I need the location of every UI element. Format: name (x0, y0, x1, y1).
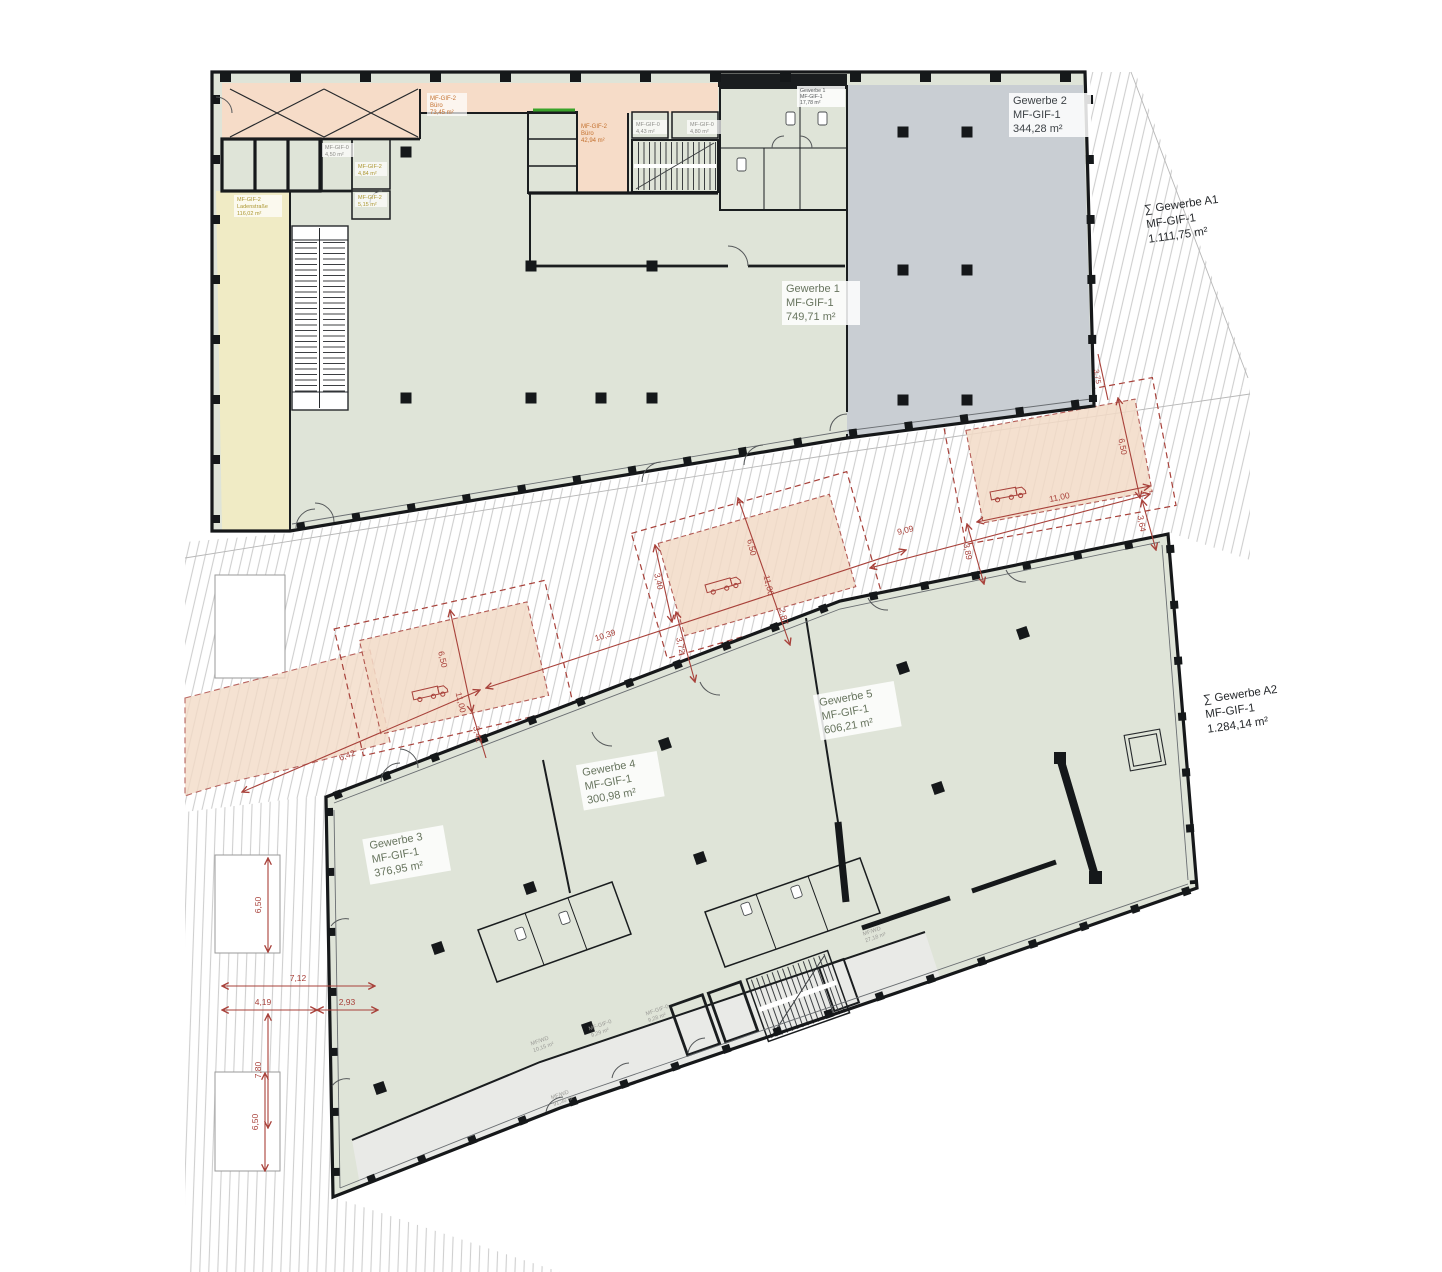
neighbor-plot (215, 1072, 280, 1171)
room-area: 5,15 m² (358, 202, 377, 208)
room-code: MF-GIF-0 (636, 122, 660, 128)
unit-name: Gewerbe 1 (786, 283, 840, 295)
toilet-icon (786, 112, 795, 125)
unit-label-gewerbe-1-wc: Gewerbe 1 MF-GIF-1 17,78 m² (797, 86, 845, 107)
unit-gewerbe-2-area (847, 85, 1092, 437)
unit-code: MF-GIF-1 (786, 297, 834, 309)
neighbor-plot (215, 855, 280, 953)
sum-name: ∑ Gewerbe A2 (1202, 684, 1278, 706)
toilet-icon (818, 112, 827, 125)
room-code: MF-GIF-2 (237, 197, 261, 203)
staircase-icon (632, 140, 718, 192)
floor-plan-canvas: 6,50 7,12 4,19 2,93 7,80 6,50 6,50 11,00… (0, 0, 1442, 1272)
dim-label: 7,80 (253, 1061, 263, 1078)
unit-label-gewerbe-2: Gewerbe 2 MF-GIF-1 344,28 m² (1009, 93, 1091, 137)
room-area: 116,02 m² (237, 211, 262, 217)
room-code: MF-GIF-2 (430, 96, 457, 102)
room-label-484: MF-GIF-2 4,84 m² (355, 162, 387, 177)
room-label-515: MF-GIF-2 5,15 m² (355, 193, 387, 208)
toilet-icon (737, 158, 746, 171)
room-code: MF-GIF-2 (581, 124, 608, 130)
room-code: MF-GIF-2 (358, 164, 382, 170)
floor-plan: 6,50 7,12 4,19 2,93 7,80 6,50 6,50 11,00… (0, 0, 1442, 1272)
unit-area: 344,28 m² (1013, 123, 1063, 135)
room-area: 4,43 m² (636, 129, 655, 135)
sum-label-a1: ∑ Gewerbe A1 MF-GIF-1 1.111,75 m² (1143, 194, 1223, 246)
escalator-icon (292, 226, 348, 410)
room-label-443: MF-GIF-0 4,43 m² (633, 120, 667, 135)
ladenstrasse-area (216, 191, 290, 530)
room-label-buero-73: MF-GIF-2 Büro 73,45 m² (427, 93, 467, 116)
dim-label: 4,19 (255, 997, 272, 1007)
room-label-450: MF-GIF-0 4,50 m² (322, 143, 354, 158)
room-area: 4,84 m² (358, 171, 377, 177)
dim-label: 6,50 (250, 1113, 260, 1130)
unit-area: 749,71 m² (786, 311, 836, 323)
room-name: Büro (430, 103, 443, 109)
unit-area: 17,78 m² (800, 100, 821, 106)
room-area: 4,80 m² (690, 129, 709, 135)
dim-label: 2,93 (339, 997, 356, 1007)
room-name: Ladenstraße (237, 204, 268, 210)
neighbor-plot (215, 575, 285, 678)
dim-label: 7,12 (290, 973, 307, 983)
sum-label-a2: ∑ Gewerbe A2 MF-GIF-1 1.284,14 m² (1202, 684, 1282, 736)
unit-name: Gewerbe 2 (1013, 95, 1067, 107)
room-area: 42,94 m² (581, 138, 605, 144)
room-code: MF-GIF-0 (325, 145, 349, 151)
unit-label-gewerbe-1: Gewerbe 1 MF-GIF-1 749,71 m² (782, 281, 860, 325)
room-code: MF-GIF-0 (690, 122, 714, 128)
room-area: 73,45 m² (430, 110, 454, 116)
room-name: Büro (581, 131, 594, 137)
dim-label: 6,50 (253, 896, 263, 913)
room-label-ladenstrasse: MF-GIF-2 Ladenstraße 116,02 m² (234, 195, 282, 217)
room-code: MF-GIF-2 (358, 195, 382, 201)
unit-code: MF-GIF-1 (1013, 109, 1061, 121)
room-area: 4,50 m² (325, 152, 344, 158)
room-label-480: MF-GIF-0 4,80 m² (687, 120, 721, 135)
